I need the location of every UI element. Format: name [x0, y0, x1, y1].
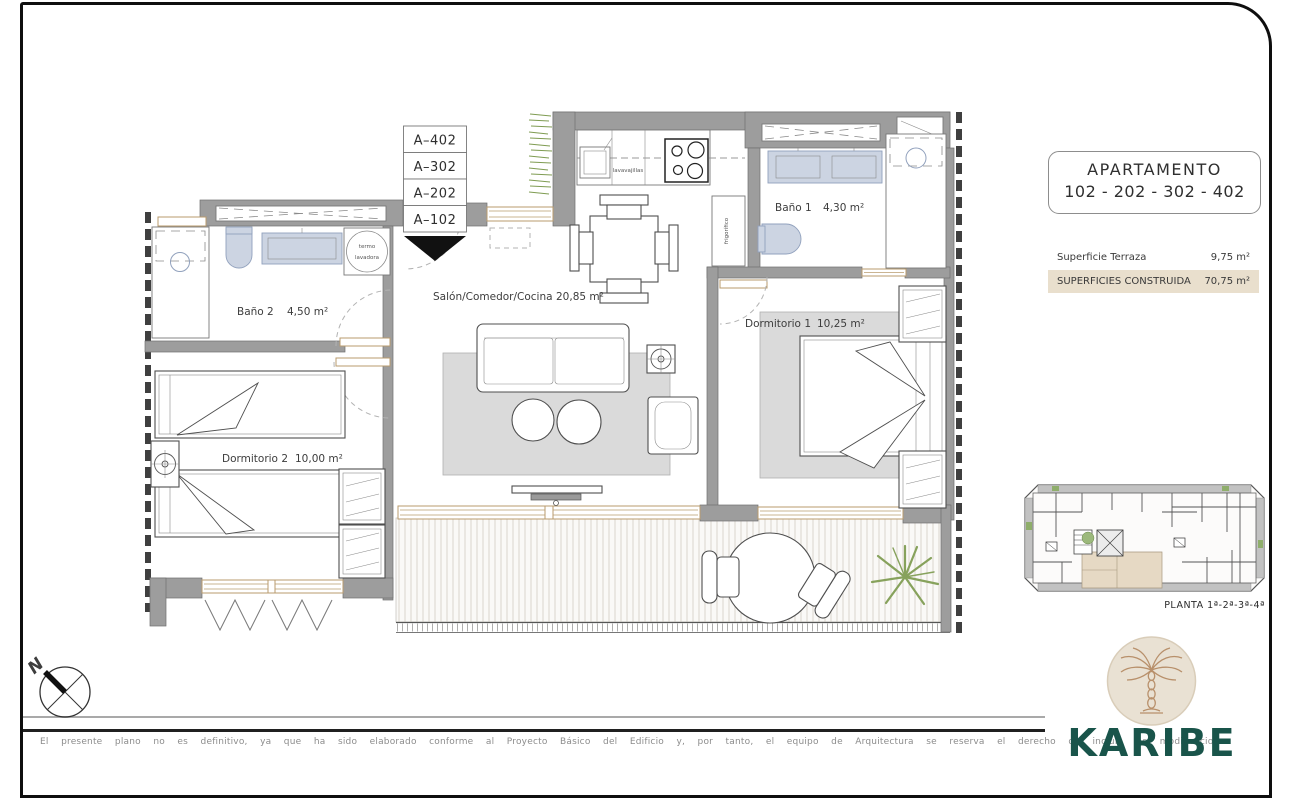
surface-row-terrace: Superficie Terraza 9,75 m²: [1048, 246, 1259, 269]
surface-row-built: SUPERFICIES CONSTRUIDA 70,75 m²: [1048, 270, 1259, 293]
room-label-salon: Salón/Comedor/Cocina: [433, 291, 553, 303]
room-label-bedroom1: Dormitorio 1: [745, 318, 811, 330]
living-room: [443, 195, 698, 506]
entry-doormat: [490, 228, 530, 248]
bath2-window: [158, 217, 206, 226]
compass-needle: [45, 672, 65, 692]
coffee-table-2: [557, 400, 601, 444]
cooktop: [665, 139, 708, 182]
tv-console: [512, 486, 602, 506]
bedroom2-window: [202, 580, 343, 593]
armchair: [648, 397, 698, 454]
room-area-bedroom2: 10,00 m²: [295, 453, 343, 465]
entrance-arrow: [404, 236, 466, 261]
bedroom2-shutter-marks: [205, 600, 332, 630]
compass: N: [20, 645, 115, 737]
entrance-planting: [529, 114, 552, 194]
boiler-label-1: termo: [359, 244, 376, 250]
surface-terrace-value: 9,75 m²: [1211, 252, 1250, 263]
footer-divider-gray: [23, 716, 1045, 718]
room-label-bath2: Baño 2: [237, 306, 274, 318]
bedroom2-wardrobe: [339, 469, 385, 578]
room-area-bath2: 4,50 m²: [287, 306, 328, 318]
floor-plan: lavavajillas frigorífico termo lavadora: [130, 100, 975, 645]
entry-threshold: [487, 207, 553, 221]
surface-built-label: SUPERFICIES CONSTRUIDA: [1057, 276, 1191, 287]
apartment-info-box: APARTAMENTO 102 - 202 - 302 - 402: [1048, 151, 1261, 214]
bedroom1-slider: [758, 507, 903, 519]
fridge: frigorífico: [712, 196, 745, 266]
terrace-railing: [396, 624, 950, 632]
building-plan-thumbnail: [1022, 482, 1267, 600]
bath1-shower: [886, 134, 946, 268]
terrace-chair-left: [702, 551, 739, 603]
boiler-label-2: lavadora: [355, 255, 379, 261]
sofa: [477, 324, 629, 392]
apartment-title: APARTAMENTO: [1049, 160, 1260, 179]
room-area-bath1: 4,30 m²: [823, 202, 864, 214]
bath2-toilet: [226, 227, 252, 268]
bath2-shower: [152, 227, 209, 338]
bath1-vanity: [768, 147, 882, 183]
unit-label-102: A–102: [414, 213, 457, 228]
bedroom2-nightstand: [151, 441, 179, 487]
bedroom1-bed: [800, 336, 946, 468]
bedroom1-wardrobe-bottom: [899, 451, 946, 508]
bedroom2-bed-top: [155, 371, 345, 438]
brand-logo: [1103, 634, 1200, 731]
bath1: [758, 134, 946, 268]
brand-name: KARIBE: [1046, 724, 1258, 762]
floor-label: PLANTA 1ª-2ª-3ª-4ª: [1095, 600, 1265, 611]
bath1-toilet: [758, 224, 801, 254]
boiler-washer: termo lavadora: [344, 228, 390, 275]
bath1-door-leaf: [720, 280, 767, 288]
bedroom1-threshold: [862, 269, 906, 276]
terrace-deck: [396, 518, 950, 633]
apartment-units: 102 - 202 - 302 - 402: [1049, 182, 1260, 201]
room-label-bath1: Baño 1: [775, 202, 812, 214]
room-label-bedroom2: Dormitorio 2: [222, 453, 288, 465]
bedroom1-wardrobe-top: [899, 286, 946, 342]
footer-divider-black: [23, 729, 1045, 732]
bath2: termo lavadora: [152, 227, 390, 338]
surface-built-value: 70,75 m²: [1204, 276, 1250, 287]
unit-label-stack: A–402 A–302 A–202 A–102: [404, 126, 467, 261]
fridge-label: frigorífico: [723, 217, 730, 244]
floor-lamp: [647, 345, 675, 373]
courtyard-green: [1082, 532, 1094, 544]
unit-label-402: A–402: [414, 134, 457, 149]
bedroom2-door-leaf: [336, 358, 390, 366]
room-area-bedroom1: 10,25 m²: [817, 318, 865, 330]
dining-table: [570, 195, 678, 303]
salon-slider: [398, 506, 700, 519]
bedroom2-bed-bottom: [155, 470, 345, 537]
bath2-vanity: [262, 228, 342, 264]
surface-terrace-label: Superficie Terraza: [1057, 252, 1146, 263]
unit-label-202: A–202: [414, 187, 457, 202]
room-area-salon: 20,85 m²: [556, 291, 604, 303]
dishwasher-label: lavavajillas: [613, 168, 644, 174]
unit-label-302: A–302: [414, 160, 457, 175]
coffee-table-1: [512, 399, 554, 441]
bath2-door-threshold: [340, 338, 390, 346]
